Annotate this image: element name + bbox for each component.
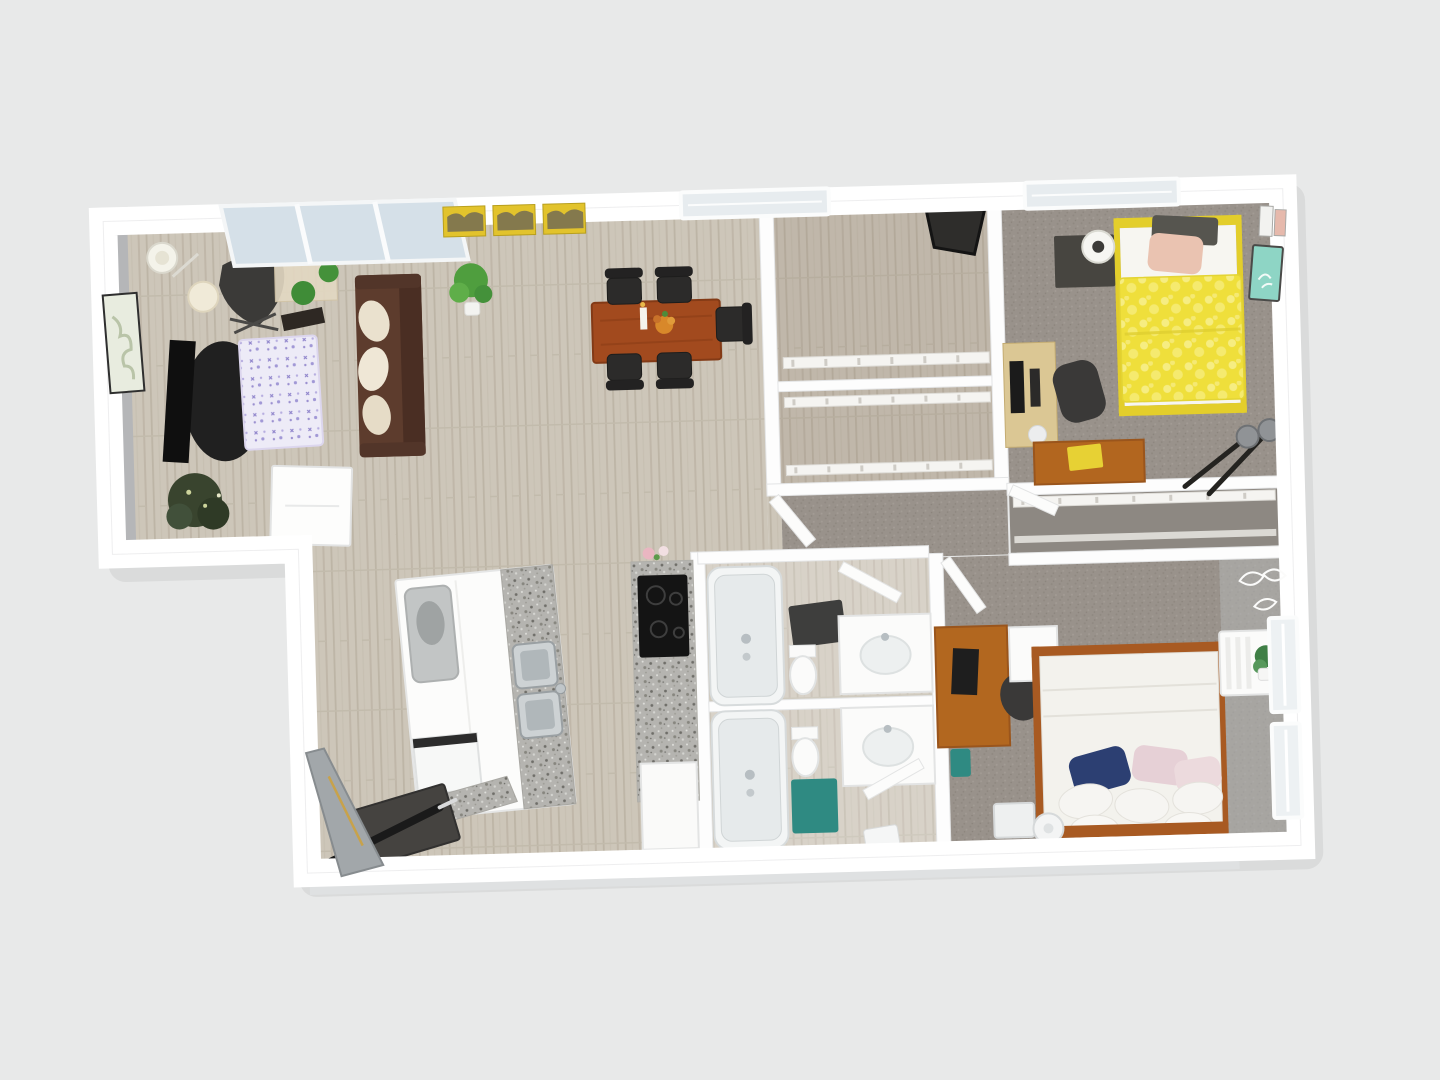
corner-frame-1	[1259, 206, 1273, 237]
candle	[640, 307, 648, 329]
dining-chair2-seat	[657, 276, 692, 303]
dining-chair4-seat	[657, 352, 692, 379]
laptop-bedroom2	[951, 648, 979, 695]
sofa-arm-bottom	[359, 442, 425, 458]
patio-door-glass	[221, 199, 469, 266]
toilet2-bowl	[792, 738, 819, 777]
dining-chair1-seat	[607, 278, 642, 305]
dumbbell-weight-1	[1236, 425, 1259, 448]
dining-chair4-back	[656, 378, 694, 389]
bed1-pillow	[1147, 232, 1204, 275]
keyboard-bedroom1	[1030, 368, 1041, 406]
notebook-yellow	[1067, 443, 1104, 471]
floor-plan-3d-render	[0, 0, 1440, 1080]
cooktop	[637, 574, 689, 657]
dining-chair3-back	[606, 380, 644, 391]
bath2-mat-teal	[791, 778, 838, 833]
sofa-arm-top	[355, 274, 421, 290]
dining-table	[592, 299, 722, 363]
kitchen-island-group	[395, 565, 577, 825]
bed1-duvet	[1119, 275, 1244, 402]
toilet1-bowl	[790, 656, 817, 695]
art-botanical	[103, 293, 145, 393]
corner-frame-2	[1274, 209, 1286, 235]
art-teal	[1249, 245, 1283, 301]
dining-chair3-seat	[607, 354, 642, 381]
side-table-round	[188, 281, 219, 312]
counter-base-cabinet	[641, 762, 699, 850]
monitor-bedroom1	[1009, 361, 1024, 413]
kitchen-sink-a-basin	[520, 649, 551, 682]
floral-rug	[239, 335, 324, 450]
dining-chair5-back	[742, 302, 753, 344]
potted-plant-pot	[465, 302, 480, 315]
vanity1-sink	[860, 635, 911, 674]
vanity2-sink	[863, 727, 914, 766]
teal-bin	[950, 749, 971, 778]
dining-chair2-back	[655, 266, 693, 277]
humidifier-box	[994, 803, 1035, 838]
kitchen-sink-b-basin	[525, 698, 556, 731]
dining-chair1-back	[605, 267, 643, 278]
kitchen-faucet	[555, 683, 566, 694]
desk-ball-bedroom1	[1028, 425, 1046, 443]
